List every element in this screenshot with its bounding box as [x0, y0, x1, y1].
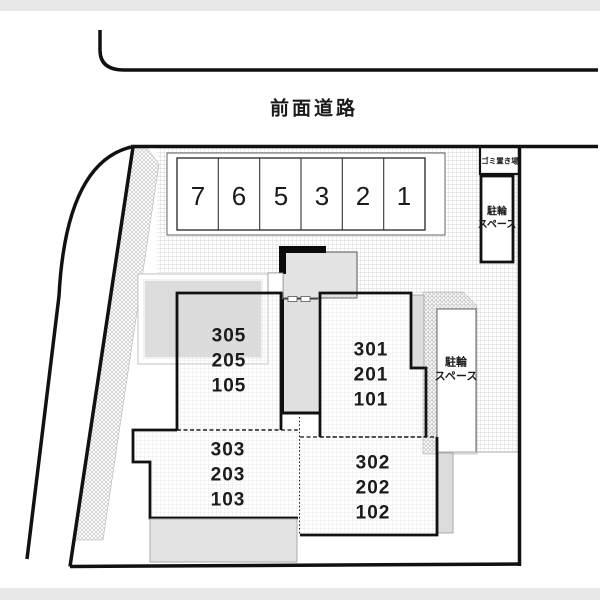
balcony-southeast	[438, 453, 453, 533]
building-southeast-units: 302 202 102	[356, 451, 391, 526]
parking-stall-number: 5	[274, 183, 288, 209]
parking-stall-number: 2	[356, 183, 370, 209]
building-southwest-units: 303 203 103	[211, 438, 246, 513]
entrance-step	[268, 273, 283, 292]
top-gray-bar	[0, 0, 600, 11]
parking-stall-number: 7	[191, 183, 205, 209]
entrance-wall-side	[279, 246, 286, 274]
bicycle-space-east-label: 駐輪 スペース	[435, 357, 478, 384]
building-east-units: 301 201 101	[354, 338, 389, 413]
entrance-door-leaf	[288, 297, 297, 302]
parking-stall-number: 6	[232, 183, 246, 209]
parking-stall-number: 3	[315, 183, 329, 209]
site-boundary-south	[70, 564, 521, 567]
site-plan-drawing	[0, 0, 600, 600]
bicycle-space-north-label: 駐輪 スペース	[478, 207, 517, 232]
site-plan: 前面道路 7 6 5 3 2 1 ゴミ置き場 駐輪 スペース 駐輪 スペース 3…	[0, 0, 600, 600]
bottom-gray-bar	[0, 588, 600, 600]
front-road-label: 前面道路	[270, 100, 358, 119]
corridor	[282, 299, 318, 413]
balcony-east	[411, 295, 424, 367]
entrance-wall-top	[279, 246, 326, 253]
entrance-door-leaf	[301, 297, 310, 302]
parking-stall-number: 1	[397, 183, 411, 209]
south-terrace	[150, 519, 297, 562]
entrance-hall	[283, 252, 357, 298]
building-west-units: 305 205 105	[212, 324, 247, 399]
road-edge-line	[100, 30, 598, 70]
garbage-area-label: ゴミ置き場	[481, 157, 519, 165]
